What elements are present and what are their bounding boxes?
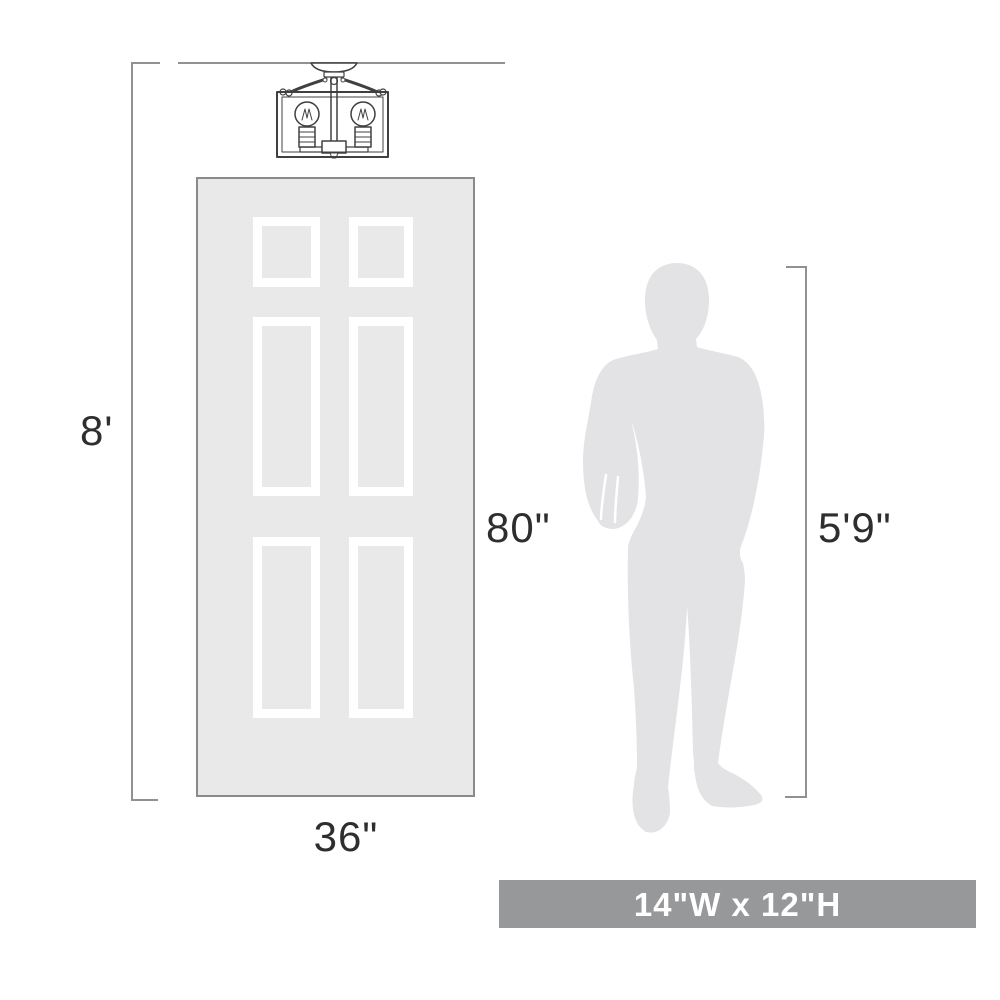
- fixture-arm: [291, 79, 326, 92]
- person-height-label: 5'9": [818, 507, 892, 549]
- scale-diagram: 8' 80" 36" 5'9" 14"W x 12"H: [0, 0, 1000, 1000]
- ceiling-light-drawing: [277, 63, 388, 158]
- person-silhouette: [583, 263, 764, 833]
- fixture-size-banner: 14"W x 12"H: [499, 880, 976, 928]
- ceiling-height-bracket: [132, 63, 160, 800]
- ceiling-height-label: 8': [80, 410, 113, 452]
- fixture-canopy: [311, 63, 357, 72]
- fixture-size-label: 14"W x 12"H: [634, 888, 841, 921]
- door-height-label: 80": [486, 507, 551, 549]
- door-slab: [197, 178, 474, 796]
- person-silhouette-shape: [583, 263, 764, 833]
- fixture-arm: [342, 79, 377, 92]
- door-width-label: 36": [300, 816, 392, 858]
- door-drawing: [197, 178, 474, 796]
- person-height-bracket: [785, 267, 806, 797]
- diagram-graphics: [0, 0, 1000, 1000]
